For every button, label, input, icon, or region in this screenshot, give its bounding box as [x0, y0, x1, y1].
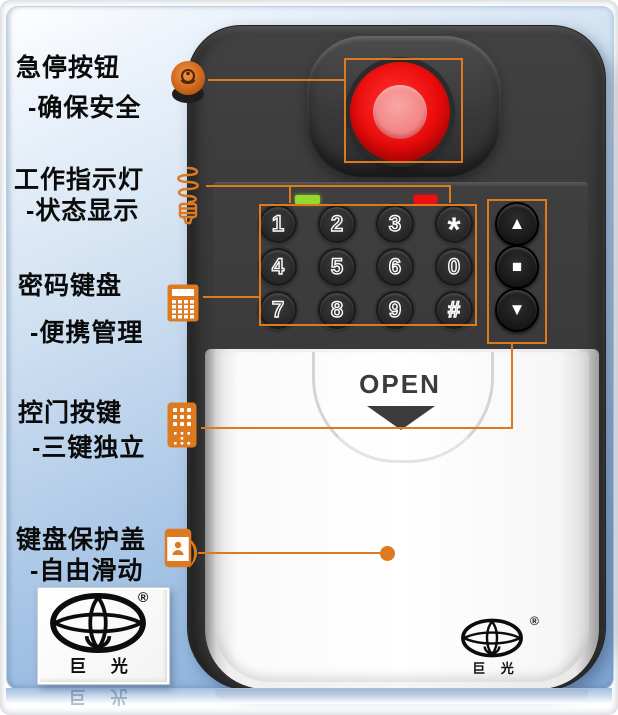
open-label: OPEN — [340, 369, 460, 400]
brand-emblem-icon — [460, 618, 524, 658]
label-cover-subtitle: -自由滑动 — [30, 551, 143, 587]
registered-mark: ® — [530, 614, 539, 628]
brand-emblem-icon — [48, 592, 148, 654]
slide-cover-icon — [164, 528, 202, 572]
annotation-dot-cover — [380, 546, 395, 561]
label-keypad-title: 密码键盘 — [18, 266, 122, 302]
annotation-line-keypad — [203, 296, 261, 298]
label-emergency-title: 急停按钮 — [16, 48, 120, 84]
annotation-box-side-buttons — [487, 199, 547, 344]
label-door-keys-title: 控门按键 — [18, 393, 122, 429]
device-reflection — [215, 689, 589, 701]
device-brand-logo: ® 巨 光 — [448, 612, 544, 678]
logo-reflection: 巨 光 — [50, 686, 156, 711]
green-status-led — [295, 195, 320, 204]
label-emergency-subtitle: -确保安全 — [28, 88, 141, 124]
indicator-lamp-icon — [170, 163, 206, 231]
annotation-line-indicator — [206, 185, 451, 187]
emergency-stop-icon — [167, 57, 209, 105]
product-diagram: 1 2 3 * 4 5 6 0 7 8 9 # ▲ ■ ▼ OPEN ® 巨 光… — [0, 0, 618, 715]
annotation-bracket-indicator-right — [449, 187, 451, 203]
annotation-line-door-keys — [201, 427, 513, 429]
label-keypad-subtitle: -便携管理 — [30, 313, 143, 349]
red-status-led — [414, 195, 437, 204]
brand-name: 巨 光 — [448, 658, 544, 677]
annotation-box-keypad — [259, 204, 477, 326]
annotation-line-door-keys-vertical — [511, 344, 513, 428]
door-buttons-remote-icon — [166, 401, 198, 449]
annotation-bracket-indicator-left — [289, 187, 291, 203]
label-indicator-subtitle: -状态显示 — [26, 191, 139, 227]
annotation-line-emergency — [208, 79, 346, 81]
password-keypad-icon — [166, 283, 200, 323]
brand-logo-card: ® 巨 光 — [37, 587, 170, 685]
brand-name: 巨 光 — [38, 652, 169, 677]
annotation-box-emergency-button — [344, 58, 463, 163]
annotation-line-cover — [198, 552, 384, 554]
label-door-keys-subtitle: -三键独立 — [32, 428, 145, 464]
registered-mark: ® — [138, 589, 148, 605]
